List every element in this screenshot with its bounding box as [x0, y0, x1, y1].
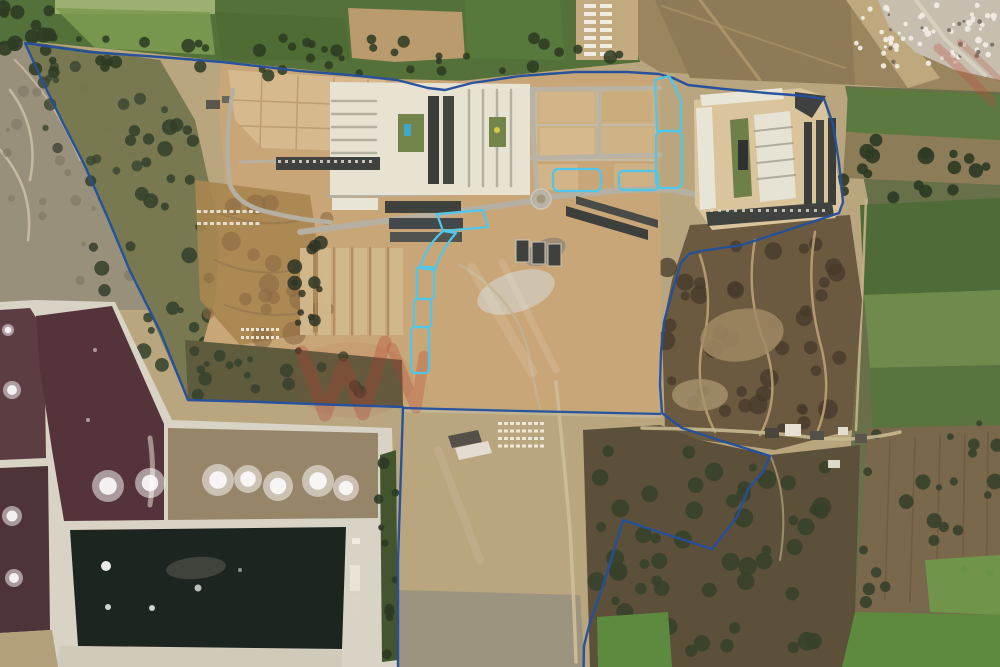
se-gray-waste	[398, 590, 585, 667]
mid-scrub-trees	[198, 372, 212, 386]
dark-row-a-dormers	[348, 160, 351, 163]
north-treeline	[463, 53, 470, 60]
east-treerow	[863, 169, 872, 178]
ne-village-roofs	[901, 37, 906, 42]
ne-village-shadows	[888, 46, 892, 50]
east-mid-trees	[915, 474, 930, 489]
left-scrub-trees-2	[118, 98, 130, 110]
road-v600	[599, 90, 600, 156]
east-scrub-dark	[719, 405, 731, 417]
ne-cluster-bottom-dormers	[750, 209, 753, 212]
west-rocks	[70, 195, 81, 206]
se-trees	[688, 477, 704, 493]
ne-cluster-mid-rows	[754, 111, 796, 202]
se-trees	[797, 518, 814, 535]
se-trees	[781, 475, 796, 490]
trailer-grid	[522, 422, 526, 425]
se-trees	[602, 445, 613, 456]
north-treeline	[253, 44, 266, 57]
ne-village-roofs	[952, 23, 955, 26]
ne-village-roofs	[983, 42, 988, 47]
north-treeline	[554, 47, 564, 57]
east-treerow	[859, 144, 874, 159]
foundation-treeline	[287, 276, 302, 291]
truck-rows	[584, 12, 596, 16]
se-village-bldg-4	[838, 427, 848, 435]
trailer-grid	[540, 422, 544, 425]
left-scrub-trees-2	[134, 93, 146, 105]
pond-green-strip	[380, 450, 398, 662]
east-scrub-dark	[800, 305, 812, 317]
north-treeline	[398, 36, 410, 48]
left-scrub-trees	[143, 193, 158, 208]
east-scrub-dark	[819, 277, 830, 288]
carport-rows	[223, 222, 227, 225]
dark-row-a-dormers	[285, 160, 288, 163]
mid-scrub-trees	[244, 372, 251, 379]
trailer-grid	[522, 445, 526, 448]
nw-corner-trees	[10, 5, 24, 19]
pond-side-bldg-2	[350, 565, 360, 591]
trailer-grid	[516, 430, 520, 433]
ne-village-shadows	[962, 20, 965, 23]
foundation-treeline	[287, 259, 302, 274]
dark-row-a	[276, 157, 380, 170]
left-scrub-trees	[89, 243, 98, 252]
west-rocks	[38, 212, 46, 220]
north-treeline	[406, 65, 414, 73]
trailer-grid	[504, 437, 508, 440]
left-scrub-trees	[181, 247, 197, 263]
north-treeline	[538, 38, 549, 49]
column-grid-dots	[246, 336, 249, 339]
ne-lot-trucks	[858, 46, 863, 51]
east-treerow	[870, 134, 883, 147]
truck-rows	[584, 4, 596, 8]
ne-village-roofs	[970, 12, 974, 16]
se-trees	[788, 642, 800, 654]
nw-corner-trees	[44, 5, 55, 16]
pond-strip-trees	[378, 457, 390, 469]
north-treeline	[139, 37, 150, 48]
truck-rows	[600, 44, 612, 48]
foundation-treeline	[298, 290, 305, 297]
east-treerow	[982, 162, 991, 171]
roundabout-inner	[537, 195, 546, 204]
truck-rows	[600, 12, 612, 16]
west-rocks	[18, 86, 29, 97]
east-treerow	[949, 150, 957, 158]
east-strip-4	[864, 290, 1000, 368]
ne-village-roofs	[979, 28, 982, 31]
ne-village-shadows	[990, 43, 994, 47]
carport-rows	[197, 210, 201, 213]
se-trees	[611, 597, 620, 606]
west-rocks	[76, 276, 85, 285]
foundation-strips	[336, 248, 349, 335]
se-trees	[641, 486, 658, 503]
north-treeline	[262, 69, 274, 81]
se-trees	[635, 583, 647, 595]
trailer-grid	[528, 437, 532, 440]
central-plot-4	[600, 128, 652, 156]
se-trees	[805, 633, 822, 650]
pond-dot-5	[238, 568, 242, 572]
central-plot-2	[600, 92, 652, 122]
left-scrub-trees	[143, 133, 154, 144]
left-scrub-trees-2	[161, 106, 168, 113]
dark-row-v1	[428, 96, 439, 184]
east-mid-trees	[950, 477, 958, 485]
ne-cluster-tower	[738, 140, 748, 170]
east-mid-trees	[984, 491, 992, 499]
mid-scrub-trees	[247, 356, 253, 362]
se-trees	[685, 645, 697, 657]
left-scrub-trees	[125, 241, 135, 251]
ne-village-shadows	[888, 13, 891, 16]
north-treeline	[181, 39, 195, 53]
foundation-treeline	[314, 236, 328, 250]
ne-village-roofs	[883, 5, 889, 11]
left-scrub-trees	[185, 175, 195, 185]
east-scrub-dark	[825, 258, 842, 275]
trailer-grid	[516, 437, 520, 440]
trailer-grid	[504, 445, 508, 448]
dark-row-a-dormers	[320, 160, 323, 163]
foundation-treeline	[308, 314, 315, 321]
left-scrub-trees	[183, 125, 193, 135]
pond-dot-4	[195, 585, 202, 592]
ne-village-roofs	[888, 36, 895, 43]
nw-corner-trees	[42, 28, 56, 42]
left-scrub-trees	[189, 322, 200, 333]
north-treeline	[202, 44, 210, 52]
north-treeline	[102, 35, 109, 42]
mid-scrub-trees	[189, 346, 199, 356]
east-bright-green-1	[842, 612, 1000, 667]
carport-rows	[210, 210, 214, 213]
east-mid-trees	[936, 484, 942, 490]
nw-corner-trees	[31, 20, 42, 31]
north-treeline	[339, 55, 345, 61]
east-scrub-dark	[804, 341, 817, 354]
ne-cluster-bottom-dormers	[806, 209, 809, 212]
east-scrub-dark	[681, 291, 690, 300]
se-trees	[640, 559, 650, 569]
north-treeline	[279, 34, 288, 43]
aerator-2	[142, 475, 159, 492]
mound-blobs	[247, 248, 260, 261]
se-trees	[814, 504, 829, 519]
pond-strip-trees	[382, 650, 392, 660]
truck-rows	[584, 28, 596, 32]
left-scrub-trees-2	[42, 125, 48, 131]
ne-village-roofs	[975, 37, 982, 44]
trailer-grid	[528, 422, 532, 425]
ne-village-shadows	[947, 28, 951, 32]
west-rocks	[91, 206, 96, 211]
north-treeline	[527, 60, 539, 72]
left-scrub-trees-2	[132, 160, 143, 171]
ne-village-roofs	[975, 3, 980, 8]
carport-rows	[223, 210, 227, 213]
trailer-grid	[540, 445, 544, 448]
north-treeline	[367, 35, 377, 45]
trailer-grid	[528, 445, 532, 448]
trailer-grid	[498, 437, 502, 440]
ne-lot-trucks	[868, 6, 873, 11]
dark-row-a-dormers	[306, 160, 309, 163]
central-plot-1	[540, 92, 594, 122]
east-treerow	[964, 153, 975, 164]
ne-lot-trucks	[854, 41, 859, 46]
satellite-canvas	[0, 0, 1000, 667]
trailer-grid	[516, 445, 520, 448]
se-village-bldg-6	[828, 460, 840, 468]
north-treeline	[195, 40, 203, 48]
left-scrub-trees-2	[113, 167, 121, 175]
ne-cluster-bottom-dormers	[774, 209, 777, 212]
small-block-1	[516, 240, 529, 262]
carport-rows	[256, 222, 260, 225]
se-trees	[722, 553, 740, 571]
mid-scrub-trees	[251, 384, 261, 394]
east-strip-3	[860, 198, 1000, 295]
truck-rows	[600, 28, 612, 32]
se-village-bldg-2	[785, 424, 801, 436]
se-village-bldg-1	[765, 428, 779, 438]
west-rocks	[64, 169, 71, 176]
ne-cluster-bottom-dormers	[758, 209, 761, 212]
ne-village-roofs	[918, 42, 923, 47]
ne-lot-trucks	[881, 51, 886, 56]
trailer-grid	[528, 430, 532, 433]
column-grid-dots	[246, 328, 249, 331]
dark-row-a-dormers	[313, 160, 316, 163]
mid-scrub-trees	[234, 359, 242, 367]
trailer-grid	[534, 437, 538, 440]
mound-blobs	[265, 255, 282, 272]
aerator-11	[9, 573, 19, 583]
left-scrub-trees	[155, 358, 169, 372]
carport-rows	[210, 222, 214, 225]
dark-row-c	[389, 218, 463, 229]
dark-row-b	[385, 201, 461, 213]
truck-rows	[584, 44, 596, 48]
trailer-grid	[540, 437, 544, 440]
east-scrub-dark	[799, 243, 809, 253]
se-green-field	[597, 612, 672, 667]
ne-village-roofs	[985, 52, 991, 58]
satellite-map[interactable]	[0, 0, 1000, 667]
trailer-grid	[510, 422, 514, 425]
dark-row-v2	[443, 96, 454, 184]
truck-rows	[584, 36, 596, 40]
carport-rows	[236, 210, 240, 213]
east-scrub-dark	[809, 238, 822, 251]
mound-blobs	[203, 308, 214, 319]
carport-rows	[204, 210, 208, 213]
pond-left-2	[0, 466, 50, 633]
ne-village-roofs	[926, 61, 931, 66]
left-scrub-trees-2	[70, 61, 81, 72]
east-scrub-dark	[748, 395, 767, 414]
dark-row-a-dormers	[292, 160, 295, 163]
left-scrub-trees	[170, 118, 184, 132]
east-scrub-dark	[736, 386, 747, 397]
aerator-3	[209, 471, 227, 489]
trailer-grid	[504, 430, 508, 433]
ne-cluster-bottom-dormers	[782, 209, 785, 212]
north-treeline	[325, 61, 333, 69]
east-mid-trees	[968, 439, 980, 451]
ne-village-shadows	[977, 19, 982, 24]
west-rocks	[81, 242, 86, 247]
east-treerow	[947, 184, 958, 195]
ne-village-roofs	[992, 17, 996, 21]
north-treeline	[604, 50, 618, 64]
column-grid-dots	[271, 328, 274, 331]
se-trees	[611, 499, 629, 517]
se-trees	[749, 464, 757, 472]
nw-corner-trees	[7, 36, 23, 52]
north-treeline	[194, 60, 206, 72]
left-scrub-trees	[148, 327, 155, 334]
foundation-treeline	[316, 286, 322, 292]
aerator-9	[5, 327, 12, 334]
east-mid-trees	[928, 535, 939, 546]
pond-dot-7	[86, 418, 90, 422]
carport-rows	[249, 210, 253, 213]
column-grid-dots	[271, 336, 274, 339]
ne-cluster-bottom-dormers	[726, 209, 729, 212]
carport-rows	[197, 222, 201, 225]
ne-cluster-bottom-dormers	[766, 209, 769, 212]
ne-village-roofs	[985, 13, 990, 18]
pond-dark	[70, 527, 346, 649]
se-trees	[738, 557, 756, 575]
foundation-treeline	[295, 320, 301, 326]
aerator-10	[7, 511, 18, 522]
column-grid-dots	[256, 328, 259, 331]
left-scrub-trees	[129, 125, 140, 136]
ne-cluster-bottom-dormers	[734, 209, 737, 212]
east-scrub-dark	[765, 242, 783, 260]
west-rocks	[55, 155, 65, 165]
central-plot-3	[540, 128, 594, 156]
foundation-treeline	[297, 309, 304, 316]
ne-village-shadows	[957, 22, 961, 26]
column-grid-dots	[266, 336, 269, 339]
ne-cluster-dark-2	[816, 120, 824, 206]
north-treeline	[76, 36, 82, 42]
left-scrub-trees	[166, 302, 179, 315]
left-scrub-trees-2	[52, 143, 62, 153]
aerator-1	[99, 477, 117, 495]
mound-blobs	[259, 274, 279, 294]
mound-blobs	[267, 291, 280, 304]
truck-rows	[584, 52, 596, 56]
mid-scrub-trees	[226, 361, 234, 369]
ne-village-shadows	[891, 60, 895, 64]
east-scrub-dark	[815, 289, 827, 301]
aerator-7	[339, 481, 353, 495]
north-treeline	[308, 40, 316, 48]
ne-village-roofs	[894, 48, 899, 53]
east-mid-trees	[863, 583, 875, 595]
se-trees	[729, 622, 740, 633]
east-scrub-dark	[676, 274, 693, 291]
aerator-6	[309, 472, 327, 490]
se-trees	[592, 469, 609, 486]
foundation-strips	[390, 248, 403, 335]
se-trees	[596, 522, 606, 532]
dark-row-a-dormers	[369, 160, 372, 163]
carport-rows	[230, 210, 234, 213]
column-grid-dots	[251, 336, 254, 339]
north-treeline	[109, 56, 122, 69]
ne-lot-trucks	[879, 30, 884, 35]
left-scrub-trees-2	[92, 154, 101, 163]
se-trees	[786, 587, 800, 601]
ne-village-roofs	[971, 16, 976, 21]
pond-strip-trees	[381, 540, 388, 547]
truck-rows	[600, 4, 612, 8]
trailer-grid	[498, 445, 502, 448]
east-strip-1	[846, 88, 1000, 140]
nw-shed-1	[206, 100, 220, 109]
ne-cluster-bottom-dormers	[790, 209, 793, 212]
east-mid-trees	[860, 596, 872, 608]
trailer-grid	[534, 445, 538, 448]
north-dirt-patch	[348, 8, 465, 62]
north-treeline	[95, 55, 105, 65]
courtyard-pool	[404, 124, 411, 136]
left-scrub-trees	[157, 141, 172, 156]
se-trees	[758, 470, 777, 489]
east-scrub-dark	[818, 399, 838, 419]
trailer-grid	[504, 422, 508, 425]
aerator-4	[240, 471, 255, 486]
left-scrub-trees	[125, 135, 136, 146]
column-grid-dots	[241, 336, 244, 339]
mid-scrub-trees	[214, 350, 226, 362]
mound-blobs	[239, 293, 252, 306]
ne-village-roofs	[884, 45, 887, 48]
scrub-clearing-2	[672, 379, 728, 411]
se-trees	[787, 539, 803, 555]
column-grid-dots	[276, 336, 279, 339]
carport-rows	[217, 210, 221, 213]
east-scrub-dark	[832, 351, 846, 365]
small-block-2	[532, 242, 545, 264]
north-treeline	[528, 32, 540, 44]
se-village-bldg-5	[855, 434, 867, 443]
carport-rows	[217, 222, 221, 225]
se-trees	[685, 501, 703, 519]
ne-village-shadows	[921, 26, 924, 29]
ne-village-roofs	[965, 26, 971, 32]
ne-cluster-dark-1	[804, 122, 812, 206]
north-treeline	[49, 57, 57, 65]
column-grid-dots	[266, 328, 269, 331]
aerator-8	[7, 385, 17, 395]
truck-rows	[600, 36, 612, 40]
pond-strip-trees	[378, 524, 384, 530]
carport-rows	[236, 222, 240, 225]
trailer-grid	[534, 430, 538, 433]
carport-rows	[230, 222, 234, 225]
